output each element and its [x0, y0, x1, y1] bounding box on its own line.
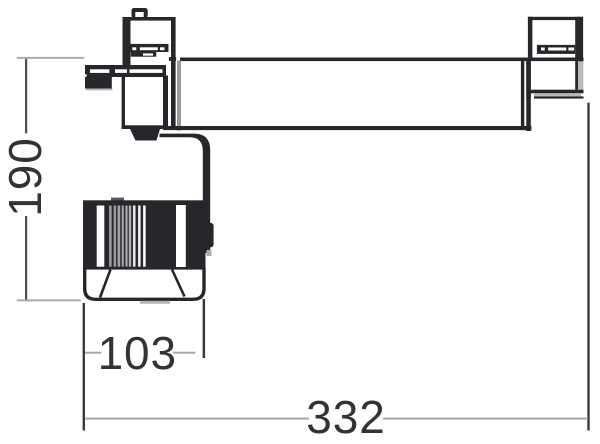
svg-text:190: 190 — [0, 137, 51, 216]
svg-text:332: 332 — [306, 391, 385, 443]
svg-text:103: 103 — [98, 327, 177, 379]
